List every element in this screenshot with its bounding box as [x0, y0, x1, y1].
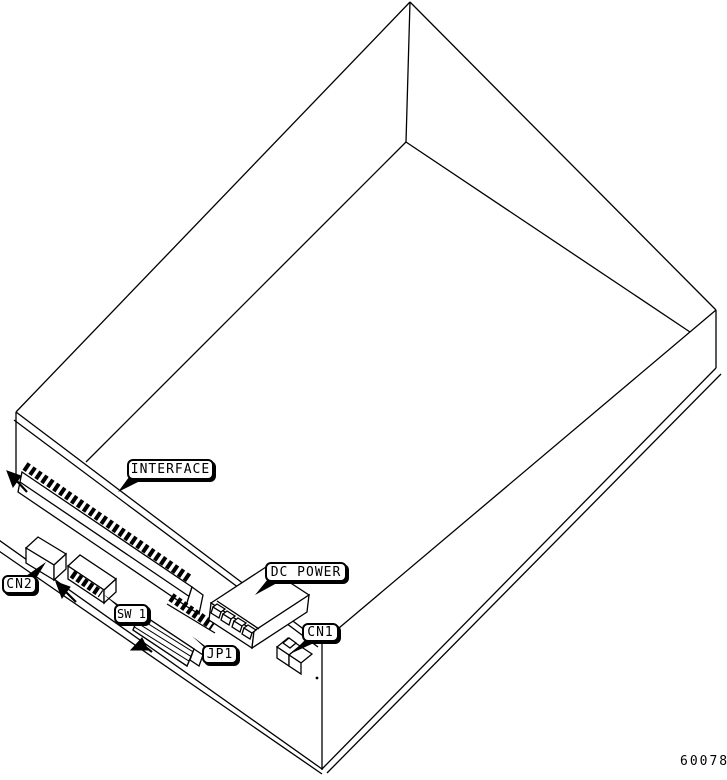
callout-label-cn1: CN1: [302, 623, 339, 642]
cn1-connector: [277, 638, 318, 679]
callout-label-cn2: CN2: [2, 575, 37, 594]
edge-top-right: [410, 2, 716, 310]
edge-front-right: [339, 310, 716, 628]
edge-back-vertical: [406, 2, 410, 142]
edge-bottom-right-b: [327, 374, 721, 773]
edge-top-left: [16, 2, 410, 412]
edge-bottom-right-a: [322, 368, 716, 769]
callout-label-sw1: SW 1: [114, 604, 149, 624]
enclosure-wireframe: [0, 0, 727, 780]
figure-canvas: INTERFACE CN2 SW 1 JP1 DC POWER CN1 6007…: [0, 0, 727, 780]
callout-label-interface: INTERFACE: [127, 459, 214, 480]
edge-inner-left: [86, 142, 406, 462]
enclosure-outline: [0, 2, 721, 774]
sw1-dip-switch: [68, 555, 116, 603]
callout-label-dc-power: DC POWER: [265, 562, 347, 582]
edge-inner-right: [406, 142, 690, 332]
figure-part-number: 60078: [680, 754, 727, 769]
callout-label-jp1: JP1: [202, 645, 238, 664]
cn1-dot: [316, 677, 319, 680]
